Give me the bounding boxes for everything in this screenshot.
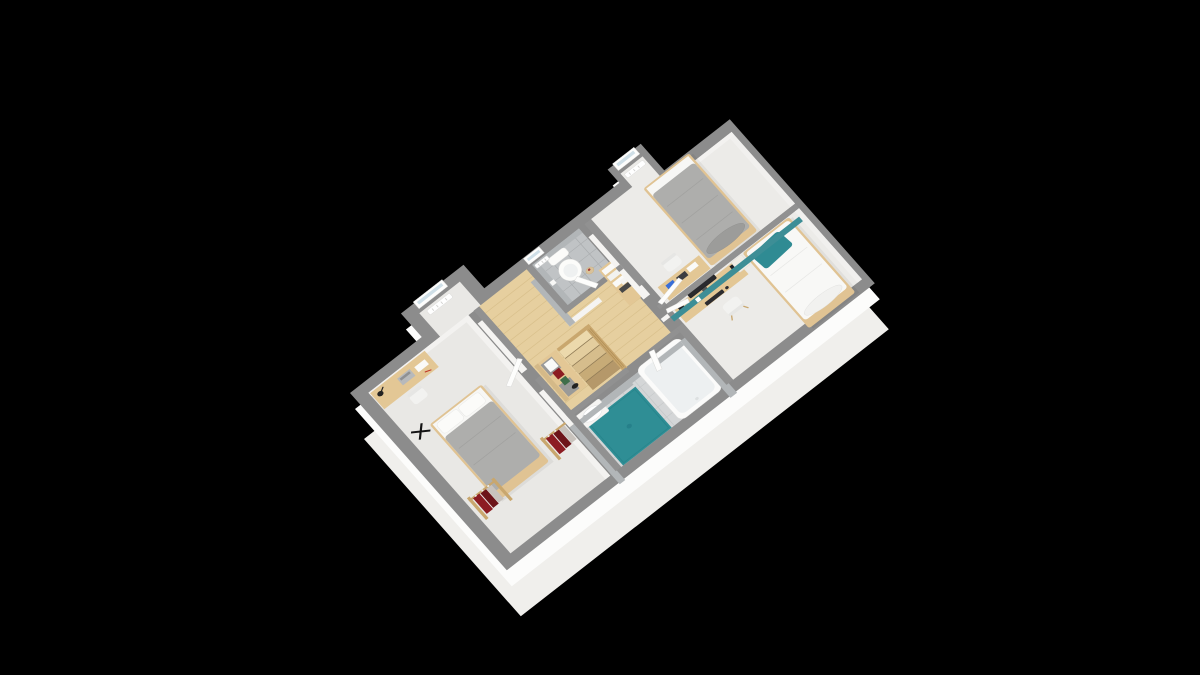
floorplan-render	[0, 0, 1200, 675]
floorplan-canvas	[0, 0, 1200, 675]
